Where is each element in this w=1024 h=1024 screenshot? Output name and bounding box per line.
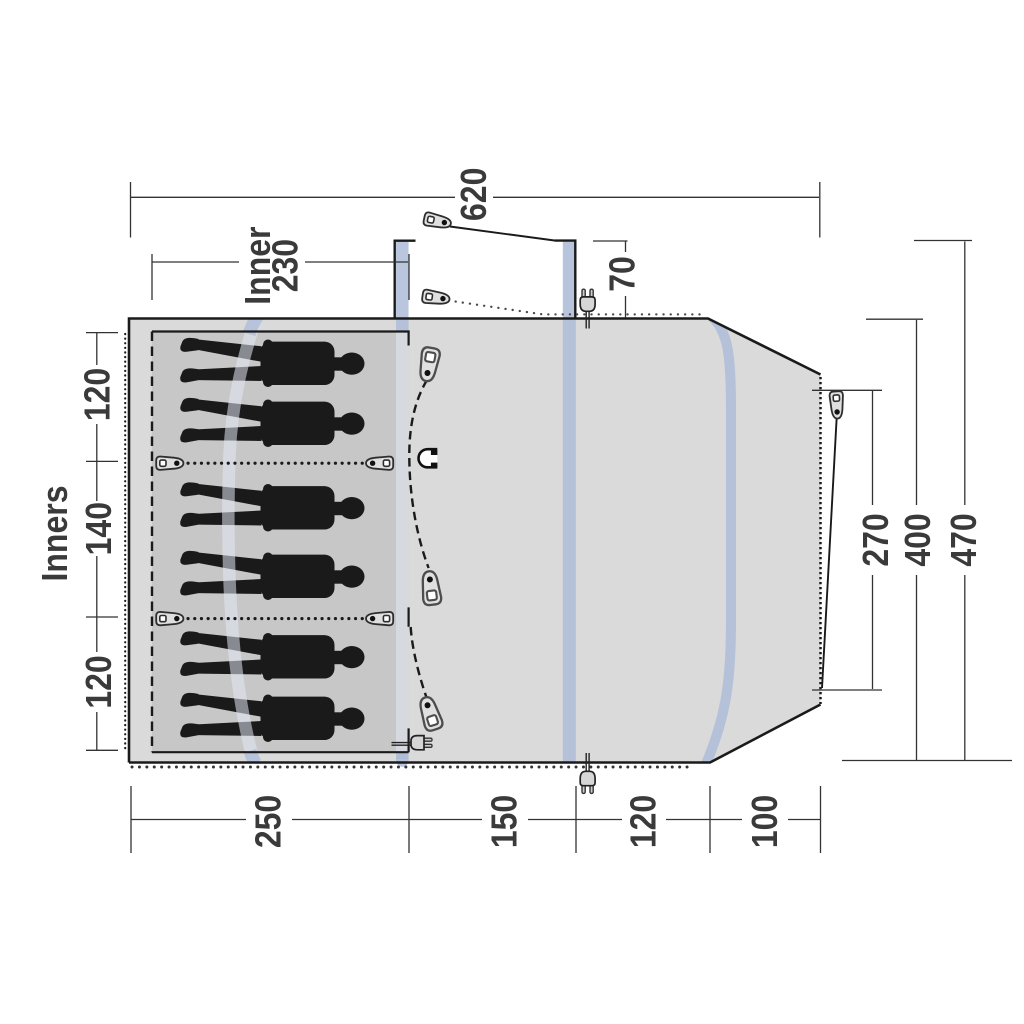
- svg-text:470: 470: [944, 513, 984, 566]
- svg-text:120: 120: [79, 655, 119, 708]
- svg-text:120: 120: [78, 368, 118, 421]
- svg-text:620: 620: [454, 168, 494, 221]
- svg-text:230: 230: [266, 239, 306, 292]
- svg-text:140: 140: [79, 502, 119, 555]
- svg-text:270: 270: [856, 513, 896, 566]
- svg-text:400: 400: [898, 513, 938, 566]
- svg-text:Inners: Inners: [35, 486, 75, 582]
- svg-text:120: 120: [624, 795, 664, 848]
- svg-text:150: 150: [485, 795, 525, 848]
- svg-text:250: 250: [249, 795, 289, 848]
- svg-text:100: 100: [745, 795, 785, 848]
- svg-text:70: 70: [603, 256, 643, 292]
